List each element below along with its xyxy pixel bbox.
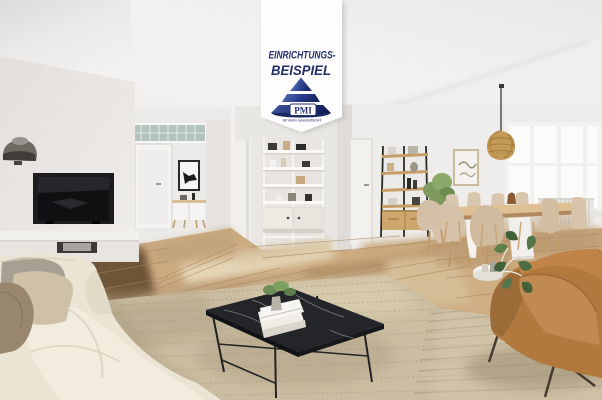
svg-text:Wir liefern Gewerbefläche®: Wir liefern Gewerbefläche®: [283, 119, 323, 123]
svg-text:BEISPIEL: BEISPIEL: [271, 63, 331, 78]
svg-text:EINRICHTUNGS-: EINRICHTUNGS-: [269, 50, 336, 62]
svg-text:PMI: PMI: [294, 106, 312, 116]
